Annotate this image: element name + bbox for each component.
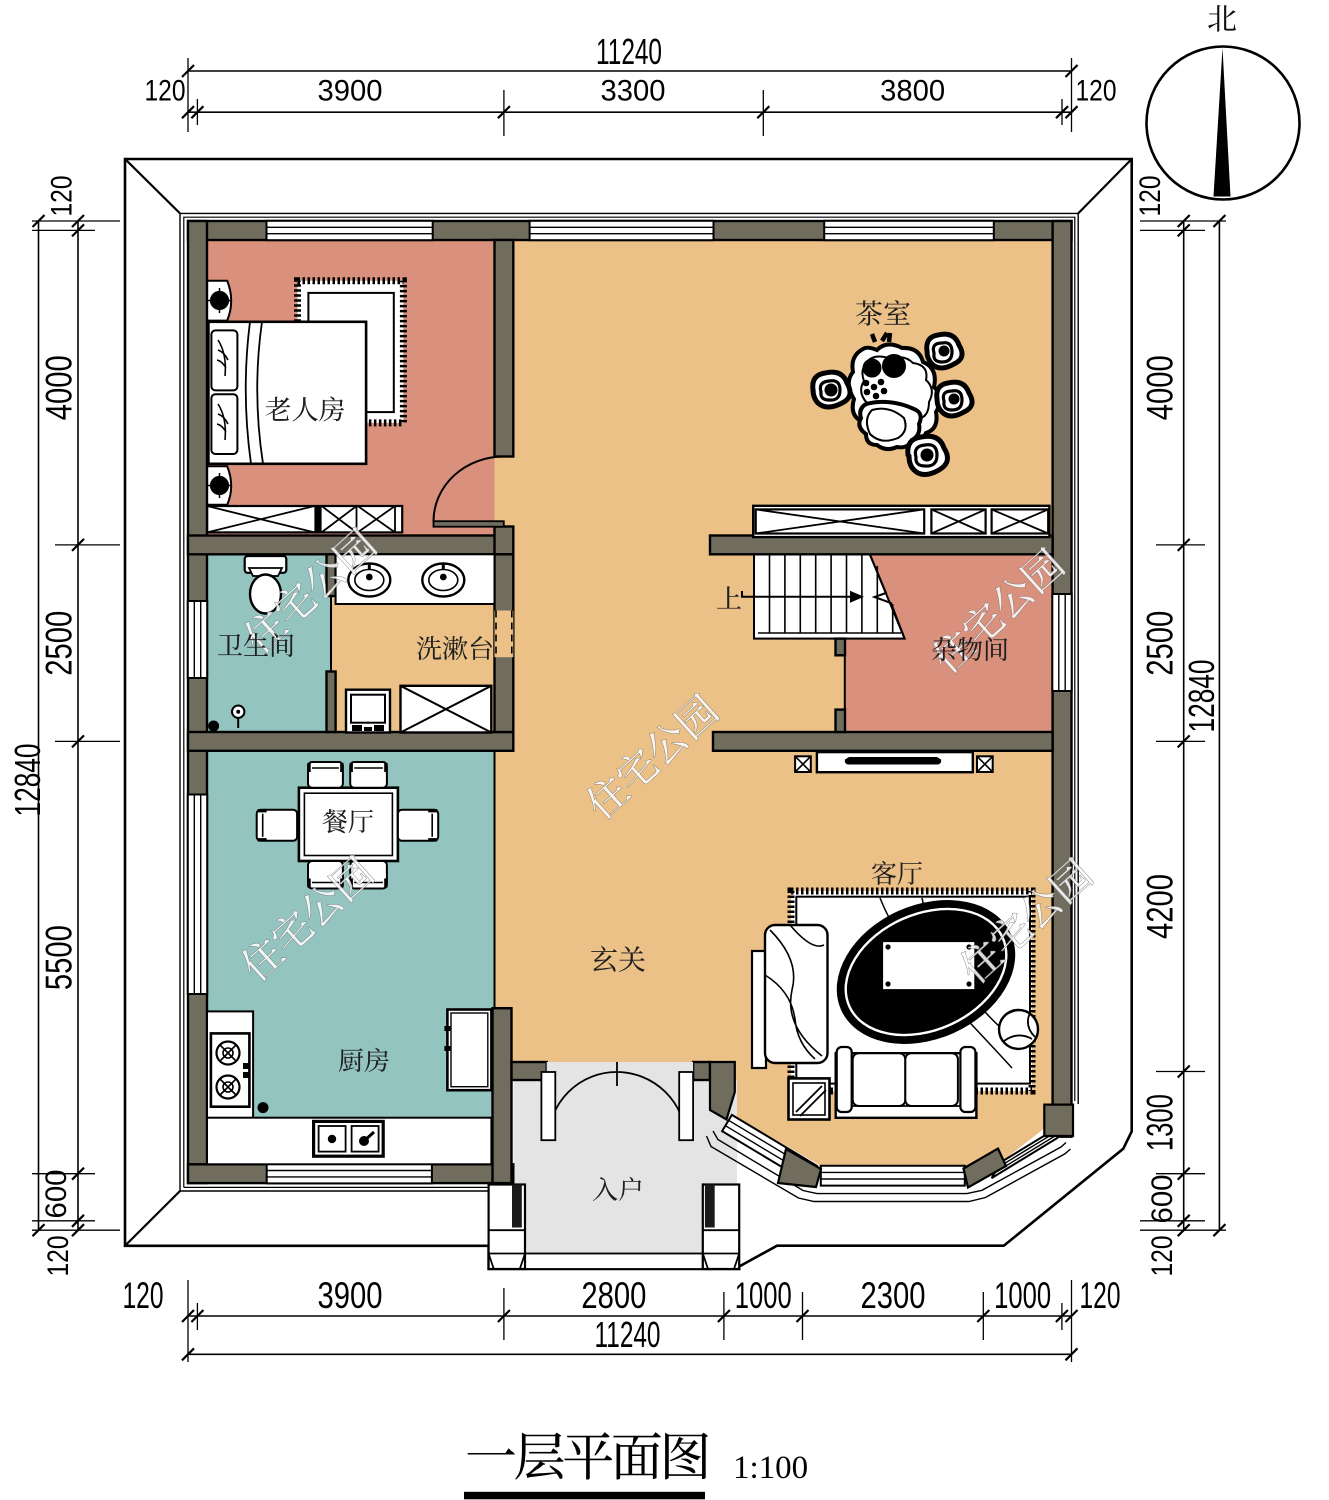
svg-text:4000: 4000 xyxy=(1140,355,1181,420)
svg-text:12840: 12840 xyxy=(7,744,48,817)
svg-text:2500: 2500 xyxy=(1140,611,1181,676)
svg-text:120: 120 xyxy=(46,176,79,217)
svg-text:120: 120 xyxy=(1134,176,1167,217)
svg-text:12840: 12840 xyxy=(1181,660,1222,733)
svg-text:1:100: 1:100 xyxy=(733,1450,808,1486)
svg-text:11240: 11240 xyxy=(596,31,662,72)
svg-text:3900: 3900 xyxy=(318,74,383,107)
svg-text:120: 120 xyxy=(1076,74,1117,107)
svg-text:120: 120 xyxy=(1146,1236,1179,1277)
svg-text:1000: 1000 xyxy=(994,1275,1051,1316)
svg-text:120: 120 xyxy=(1080,1275,1121,1316)
svg-text:120: 120 xyxy=(42,1236,75,1277)
svg-text:1000: 1000 xyxy=(735,1275,792,1316)
svg-text:120: 120 xyxy=(145,74,186,107)
svg-text:3800: 3800 xyxy=(880,74,945,107)
svg-text:5500: 5500 xyxy=(39,925,80,990)
svg-text:2800: 2800 xyxy=(581,1275,646,1316)
svg-text:4200: 4200 xyxy=(1140,874,1181,939)
svg-text:3900: 3900 xyxy=(318,1275,383,1316)
svg-text:3300: 3300 xyxy=(601,74,666,107)
svg-text:120: 120 xyxy=(123,1275,164,1316)
svg-text:600: 600 xyxy=(40,1170,73,1219)
svg-text:2500: 2500 xyxy=(39,611,80,676)
svg-text:11240: 11240 xyxy=(595,1314,661,1355)
svg-text:1300: 1300 xyxy=(1140,1094,1181,1151)
svg-text:600: 600 xyxy=(1146,1175,1179,1224)
svg-text:4000: 4000 xyxy=(39,355,80,420)
svg-text:2300: 2300 xyxy=(861,1275,926,1316)
